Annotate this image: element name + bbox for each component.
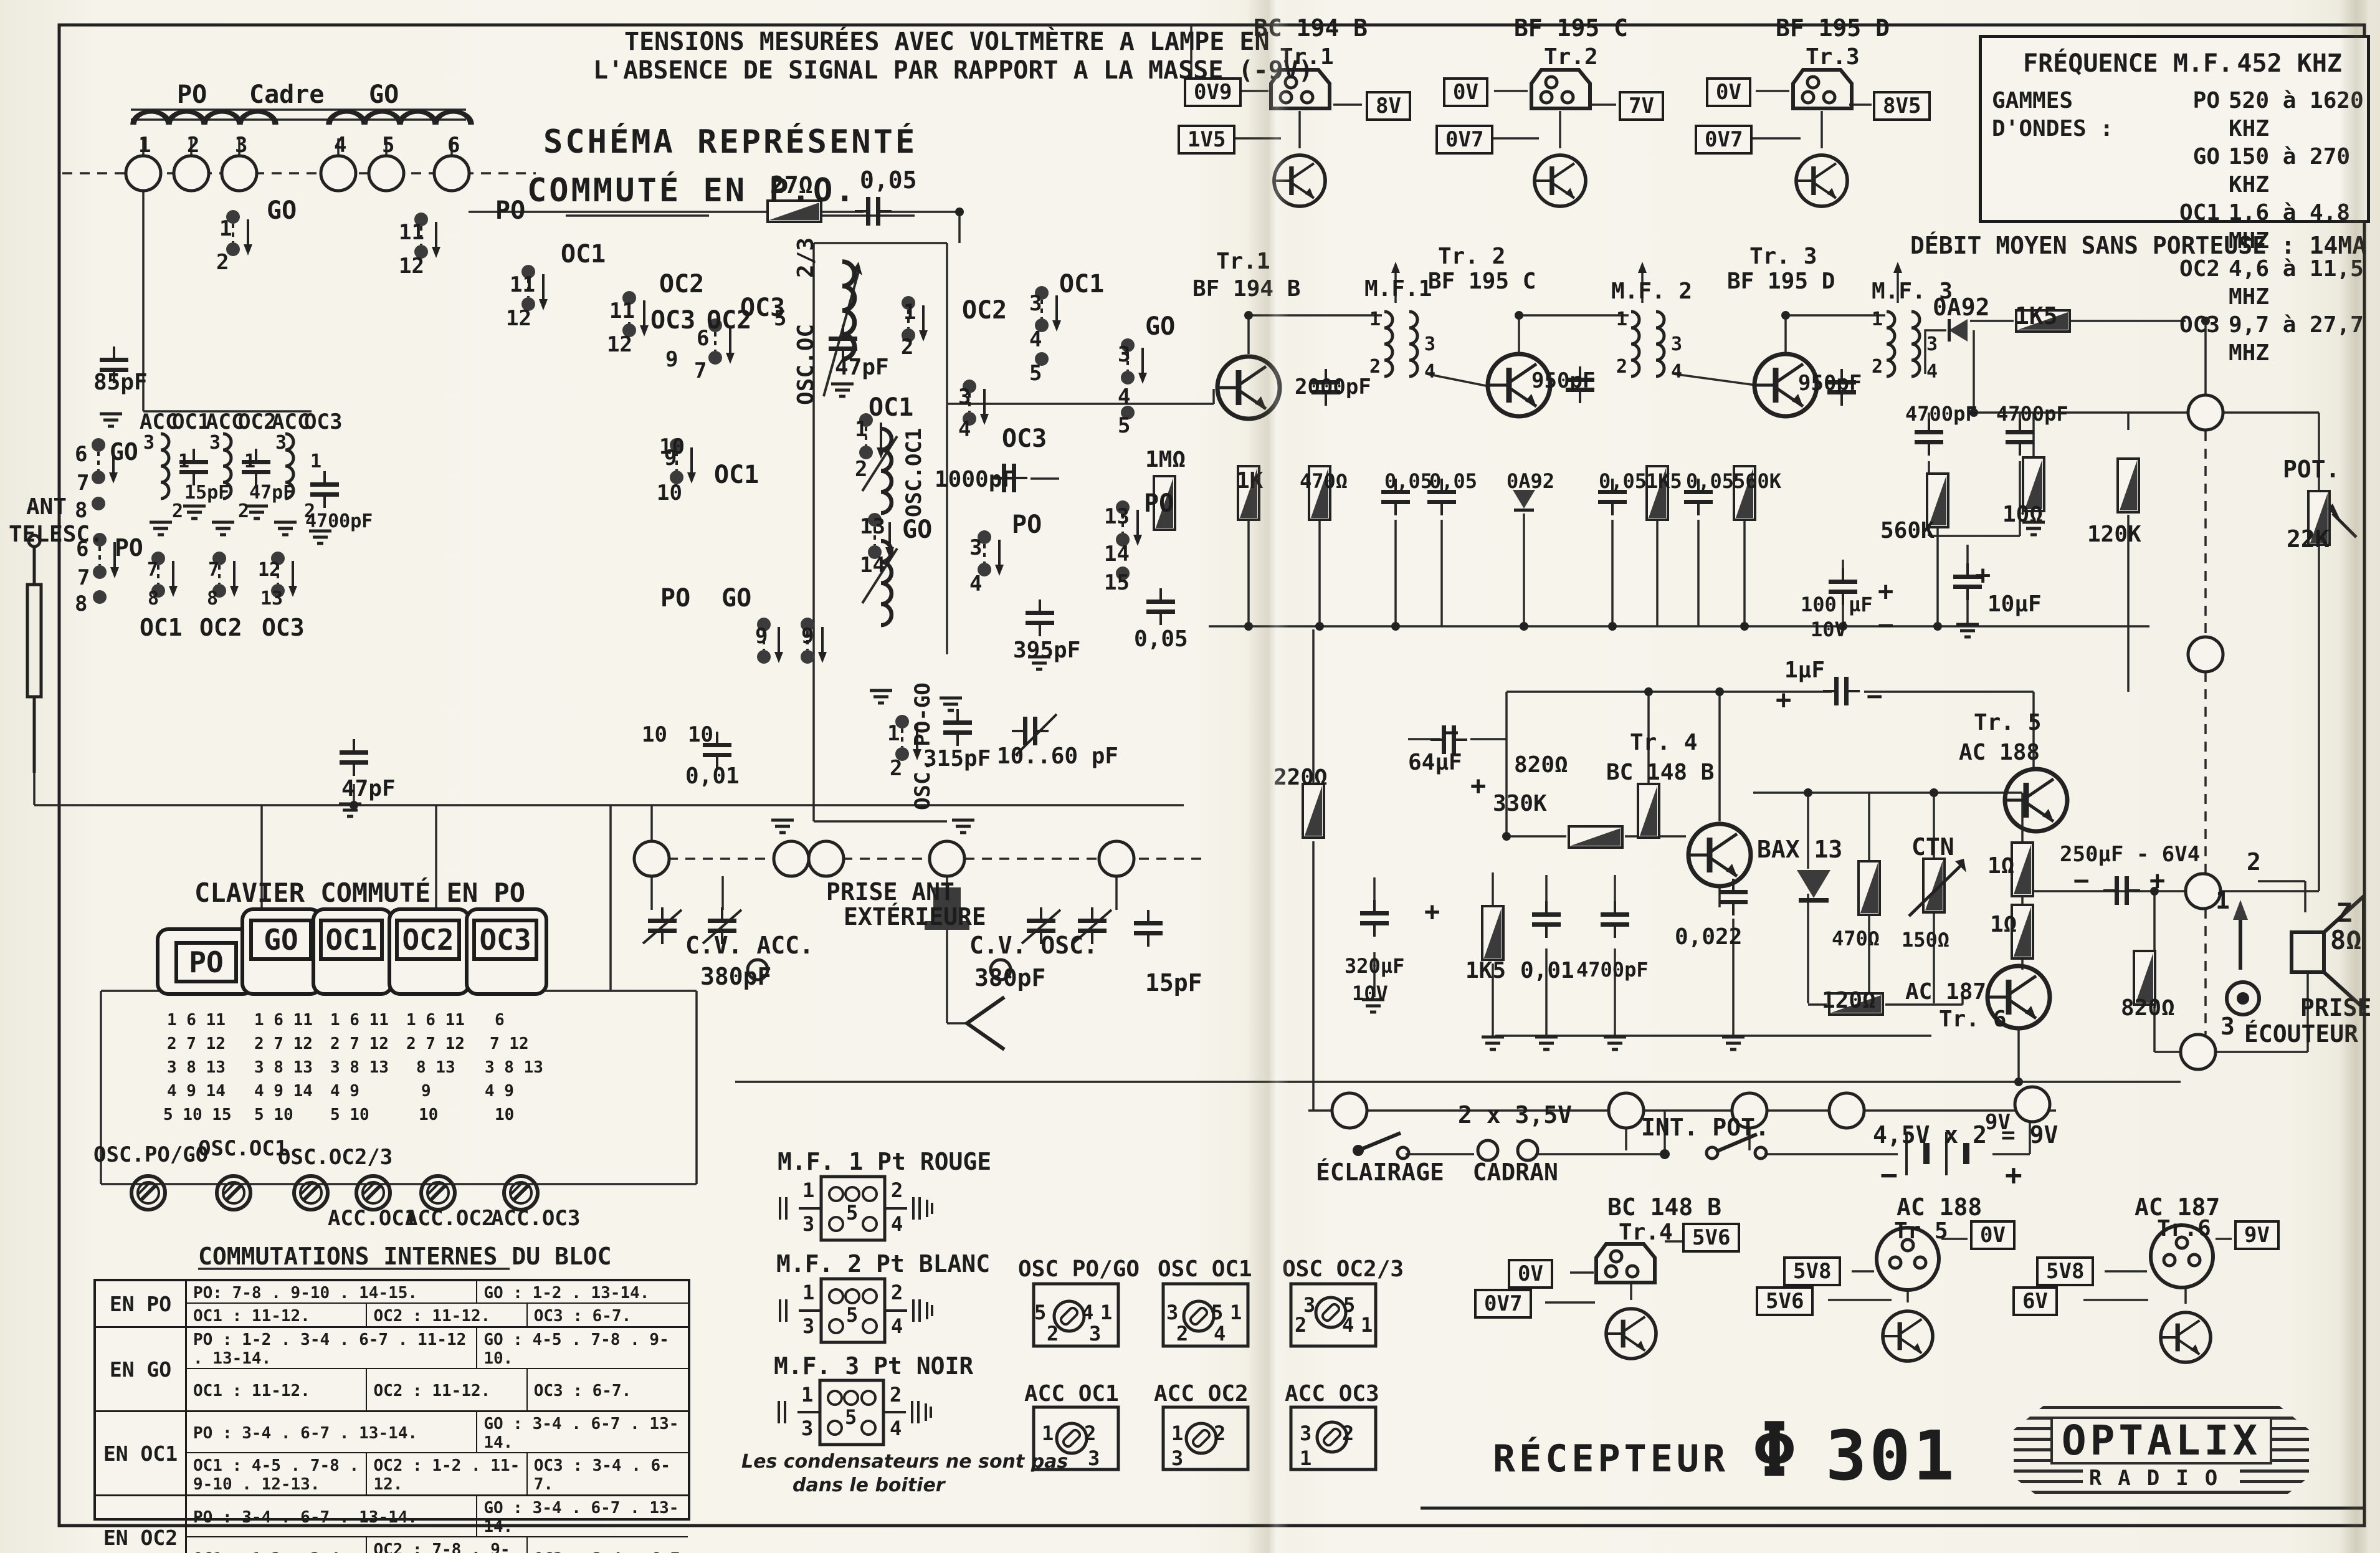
range-go: 150 à 270 KHZ	[2229, 143, 2372, 199]
schematic-label: 22K	[2287, 527, 2330, 551]
schematic-label: Z	[2336, 900, 2352, 926]
schematic-label: 3	[802, 1316, 814, 1336]
schematic-label: 10	[419, 1107, 438, 1123]
schematic-label: 15pF	[184, 484, 229, 502]
schematic-label: BF 195 C	[1514, 16, 1628, 40]
schematic-label: 1	[855, 419, 867, 440]
schematic-label: 12	[607, 334, 632, 355]
schematic-label: 2	[1342, 1423, 1354, 1443]
schematic-label: 14	[1104, 543, 1130, 565]
schematic-label: OC2	[707, 308, 751, 333]
schematic-label: 4700pF	[1576, 960, 1649, 980]
freq-mf-value: 452 KHZ	[2237, 49, 2342, 78]
schematic-label: 4700pF	[1905, 404, 1978, 424]
schematic-label: BC 148 B	[1606, 762, 1714, 784]
schematic-label: Tr. 4	[1630, 732, 1697, 754]
schematic-label: 380pF	[974, 966, 1045, 990]
schematic-label: 3	[1303, 1295, 1315, 1315]
schematic-label: 3 8 13	[167, 1059, 226, 1076]
schematic-label: C.V. OSC.	[969, 934, 1098, 957]
schematic-label: 3	[1300, 1423, 1311, 1443]
schematic-label: 1	[219, 218, 232, 239]
voltage-callout: 0V7	[1695, 125, 1753, 155]
key-oc2[interactable]: OC2	[395, 919, 461, 961]
schematic-label: Tr. 3	[1749, 246, 1817, 268]
schematic-label: GO	[369, 82, 399, 107]
schematic-label: −	[1878, 612, 1893, 638]
schematic-label: +	[1776, 687, 1791, 713]
schematic-label: −	[1880, 1160, 1898, 1189]
schematic-label: 1K	[1236, 470, 1263, 492]
schematic-label: 1	[1616, 310, 1627, 329]
schematic-label: 2	[890, 1385, 902, 1405]
schematic-label: BF 194 B	[1192, 278, 1300, 300]
schematic-label: 2 7 12	[254, 1036, 313, 1052]
schematic-label: EXTÉRIEURE	[844, 905, 986, 929]
schematic-label: 950pF	[1798, 373, 1862, 394]
schematic-label: 9	[421, 1083, 431, 1099]
voltage-callout: 5V6	[1682, 1223, 1740, 1253]
schematic-label: 1	[1171, 1423, 1183, 1443]
commut-table-title: COMMUTATIONS INTERNES DU BLOC	[198, 1243, 611, 1270]
schematic-label: OSC.OC	[795, 324, 817, 405]
mf2-title: M.F. 2 Pt BLANC	[776, 1250, 990, 1278]
schematic-label: 3	[2221, 1015, 2235, 1038]
schematic-label: 3	[209, 434, 221, 452]
schematic-label: OC1	[1059, 272, 1104, 297]
schematic-label: BF 195 D	[1776, 16, 1890, 40]
schematic-label: −	[2073, 867, 2089, 894]
schematic-label: 1	[2216, 889, 2230, 912]
schematic-label: 395pF	[1013, 639, 1080, 662]
schematic-label: Cadre	[249, 82, 324, 107]
schematic-label: 5	[1118, 415, 1130, 436]
schematic-label: OC2	[199, 616, 242, 639]
schematic-label: TELESC.	[9, 523, 103, 546]
schematic-label: 4	[1029, 329, 1042, 350]
schematic-label: 47pF	[249, 484, 294, 502]
schematic-label: BAX 13	[1757, 838, 1842, 861]
schematic-label: 12	[399, 256, 424, 277]
schematic-label: 0,022	[1675, 926, 1742, 949]
schematic-label: 1µF	[1784, 659, 1825, 682]
osc-pogo-title: OSC PO/GO	[1018, 1256, 1140, 1282]
schematic-label: M.F. 2	[1611, 280, 1692, 303]
freq-mf-label: FRÉQUENCE M.F.	[2023, 49, 2233, 78]
schematic-label: 120Ω	[1822, 990, 1876, 1012]
schematic-label: 10V	[1811, 619, 1847, 639]
schematic-label: 4	[1671, 363, 1682, 381]
schematic-label: 2/3	[795, 237, 817, 278]
schematic-label: 8 13	[416, 1059, 455, 1076]
schematic-label: 6	[76, 538, 88, 560]
schematic-label: 4	[334, 135, 346, 156]
schematic-label: 9	[665, 349, 678, 370]
key-oc1[interactable]: OC1	[319, 919, 384, 961]
schematic-label: 120K	[2087, 523, 2141, 546]
top-note-line1: TENSIONS MESURÉES AVEC VOLTMÈTRE A LAMPE…	[624, 27, 1270, 56]
schematic-label: ACC.OC1	[328, 1208, 417, 1229]
voltage-callout: 0V	[1970, 1220, 2016, 1250]
schematic-label: 0,05	[1429, 471, 1477, 491]
commutations-table: EN PO PO: 7-8 . 9-10 . 14-15.GO : 1-2 . …	[93, 1279, 690, 1521]
schematic-label: 11	[609, 300, 635, 322]
schematic-label: 5	[774, 308, 786, 329]
key-oc3[interactable]: OC3	[472, 919, 538, 961]
schematic-label: 2	[216, 252, 229, 273]
schematic-label: 4	[890, 1418, 902, 1438]
schematic-label: 0,01	[685, 765, 740, 788]
optalix-logo: OPTALIX RADIO	[2014, 1406, 2309, 1501]
schematic-label: 4	[969, 573, 982, 595]
schematic-label: Tr. 6	[1939, 1008, 2006, 1031]
schematic-label: 5	[1029, 363, 1042, 384]
schematic-label: Tr. 2	[1438, 246, 1505, 268]
schematic-label: 1	[1300, 1448, 1311, 1468]
schematic-label: −	[1443, 719, 1459, 745]
schematic-label: 1	[1230, 1302, 1242, 1322]
schematic-label: OC3	[650, 308, 695, 333]
schematic-label: 10Ω	[2002, 504, 2043, 526]
schematic-label: 3	[958, 386, 971, 408]
acc-oc3-title: ACC OC3	[1285, 1381, 1379, 1407]
schematic-label: 5	[1343, 1295, 1355, 1315]
mf3-title: M.F. 3 Pt NOIR	[774, 1352, 973, 1380]
schematic-label: 3	[801, 1418, 813, 1438]
schematic-label: 4	[1342, 1315, 1354, 1335]
schematic-label: 1	[887, 723, 900, 744]
schematic-label: 4 9 14	[167, 1083, 226, 1099]
schematic-label: 3	[1424, 335, 1435, 354]
schematic-label: 4	[1118, 386, 1130, 408]
schematic-label: 1 6 11	[167, 1012, 226, 1028]
schematic-label: PO	[660, 586, 690, 611]
schematic-label: 4	[958, 419, 971, 440]
schematic-label: 2	[172, 502, 183, 521]
schematic-label: Tr. 5	[1974, 712, 2041, 734]
schema-title-line2: COMMUTÉ EN P.O.	[527, 172, 857, 209]
schematic-label: 1	[801, 1385, 813, 1405]
schematic-label: −	[1867, 683, 1882, 709]
schematic-label: PO	[495, 198, 525, 223]
key-po[interactable]: PO	[174, 941, 238, 983]
table-row: EN PO PO: 7-8 . 9-10 . 14-15.GO : 1-2 . …	[96, 1281, 688, 1328]
schematic-label: 2	[1214, 1423, 1226, 1443]
schematic-label: 4 9	[330, 1083, 359, 1099]
schematic-label: 3	[802, 1214, 814, 1234]
schematic-label: 3 8 13	[330, 1059, 389, 1076]
schematic-label: 470Ω	[1300, 471, 1348, 491]
schematic-label: PRISE	[2300, 996, 2371, 1020]
schematic-label: 7	[694, 360, 707, 381]
schematic-label: 250µF - 6V4	[2060, 844, 2200, 865]
schematic-label: 1	[178, 452, 189, 471]
voltage-callout: 0V	[1443, 77, 1488, 107]
schematic-label: OC1	[561, 242, 606, 267]
schematic-label: 2	[855, 459, 867, 480]
band-oc2: OC2	[2179, 255, 2229, 311]
schematic-label: 100 µF	[1801, 595, 1873, 614]
table-row: EN GO PO : 1-2 . 3-4 . 6-7 . 11-12 . 13-…	[96, 1328, 688, 1412]
schematic-page: POCadreGO123456GO12PO1112OC11112OC21112O…	[0, 0, 2380, 1553]
schematic-label: POT.	[2283, 457, 2340, 481]
schematic-label: 1	[244, 452, 255, 471]
schematic-label: 2	[238, 502, 249, 521]
schematic-label: 15pF	[1145, 971, 1202, 995]
schematic-label: 4700pF	[1996, 404, 2068, 424]
schematic-label: 8	[75, 500, 87, 521]
schematic-label: 560K	[1880, 520, 1935, 542]
schematic-label: 5 10	[330, 1107, 369, 1123]
schematic-label: 2	[901, 337, 913, 358]
schematic-label: 2	[1047, 1324, 1059, 1344]
schematic-label: 7	[77, 472, 89, 494]
schematic-label: OC3	[304, 411, 342, 432]
debit-note: DÉBIT MOYEN SANS PORTEUSE : 14MA	[1910, 232, 2366, 259]
top-note-line2: L'ABSENCE DE SIGNAL PAR RAPPORT A LA MAS…	[593, 56, 1313, 85]
schematic-label: 11	[399, 222, 424, 243]
schematic-label: 560K	[1733, 471, 1781, 491]
schematic-label: 5	[846, 1305, 858, 1325]
schematic-label: Tr.6	[2157, 1218, 2211, 1240]
schematic-label: OC2	[238, 411, 276, 432]
schematic-label: 10	[657, 482, 682, 504]
schematic-label: 1	[138, 135, 151, 156]
schematic-label: 7	[147, 561, 158, 580]
schematic-label: 2 7 12	[330, 1036, 389, 1052]
schematic-label: 2	[1369, 358, 1381, 376]
schematic-label: ACC.OC3	[491, 1208, 580, 1229]
schematic-label: 2	[187, 135, 199, 156]
voltage-callout: 0V7	[1435, 125, 1493, 155]
schematic-label: 0,01	[1520, 960, 1574, 982]
schematic-label: 2	[2247, 850, 2261, 874]
schematic-label: 380pF	[700, 965, 771, 988]
schematic-label: 220Ω	[1273, 767, 1328, 789]
schematic-label: 3	[969, 537, 982, 558]
schematic-label: 9V	[1985, 1112, 2011, 1133]
schematic-label: 4	[891, 1316, 903, 1336]
schematic-label: 2	[1295, 1315, 1307, 1335]
schematic-label: 9	[801, 626, 814, 647]
schematic-label: +	[1975, 562, 1991, 588]
brand-name: OPTALIX	[2050, 1417, 2272, 1465]
schematic-label: 8Ω	[2330, 927, 2362, 953]
schematic-label: 15	[1104, 572, 1130, 593]
frequency-table: FRÉQUENCE M.F.452 KHZ GAMMES D'ONDES :PO…	[1979, 35, 2370, 223]
schematic-label: +	[1878, 578, 1893, 604]
voltage-callout: 0V	[1706, 77, 1751, 107]
schematic-label: 47pF	[835, 356, 889, 379]
schematic-label: 10	[495, 1107, 514, 1123]
schematic-label: ÉCOUTEUR	[2244, 1022, 2358, 1046]
schematic-label: OSC.PO/GO	[93, 1144, 208, 1165]
schematic-label: 1	[903, 302, 916, 323]
schematic-label: ANT	[26, 496, 67, 518]
schematic-label: +	[1470, 773, 1486, 799]
schematic-label: 9	[755, 626, 768, 647]
schematic-label: 5	[1211, 1302, 1223, 1322]
schematic-label: 10..60 pF	[997, 745, 1118, 768]
schematic-label: 5	[382, 135, 394, 156]
range-po: 520 à 1620 KHZ	[2229, 87, 2372, 143]
osc-oc23-title: OSC OC2/3	[1282, 1256, 1404, 1282]
schematic-label: 470Ω	[1832, 929, 1880, 949]
schematic-label: 0,05	[860, 168, 917, 192]
schematic-label: 47pF	[341, 778, 396, 800]
schematic-label: +	[1424, 899, 1440, 925]
schematic-label: 64µF	[1408, 752, 1462, 774]
voltage-callout: 5V6	[1756, 1286, 1814, 1316]
schematic-label: GO	[1145, 314, 1175, 339]
schematic-label: OSC.OC1	[198, 1138, 287, 1159]
schematic-label: 7	[77, 567, 90, 588]
schematic-label: 2	[1176, 1324, 1188, 1344]
schematic-label: 4	[1424, 363, 1435, 381]
schematic-label: 4 9	[485, 1083, 514, 1099]
acc-oc1-title: ACC OC1	[1024, 1381, 1119, 1407]
schematic-label: 1	[1100, 1302, 1112, 1322]
receiver-label: RÉCEPTEUR	[1493, 1437, 1729, 1481]
mf-note-line2: dans le boitier	[793, 1474, 945, 1496]
schematic-label: 6	[75, 444, 87, 465]
schematic-label: 13	[260, 590, 283, 608]
schematic-label: BF 195 D	[1727, 270, 1835, 293]
schematic-label: INT. POT.	[1641, 1116, 1769, 1139]
clavier-title: CLAVIER COMMUTÉ EN PO	[194, 877, 525, 908]
schematic-label: 950pF	[1531, 370, 1595, 391]
schematic-label: OC1	[140, 616, 183, 639]
schematic-label: 0,05	[1599, 471, 1647, 491]
schematic-label: 4	[891, 1214, 903, 1234]
schematic-label: 1Ω	[1987, 855, 2014, 877]
schematic-label: M.F.1	[1364, 278, 1432, 300]
band-po: PO	[2179, 87, 2229, 143]
schematic-label: AC 188	[1959, 742, 2040, 764]
voltage-callout: 0V7	[1474, 1289, 1532, 1319]
key-go[interactable]: GO	[249, 919, 313, 961]
schematic-label: 3	[143, 434, 155, 452]
schematic-label: OSC.OC2/3	[278, 1147, 393, 1168]
voltage-callout: 8V5	[1873, 91, 1931, 121]
schematic-label: GO	[721, 586, 751, 611]
schematic-label: 820Ω	[1514, 754, 1568, 777]
voltage-callout: 6V	[2012, 1286, 2058, 1316]
schematic-label: 10µF	[1987, 593, 2042, 616]
mf-note-line1: Les condensateurs ne sont pas	[741, 1451, 1068, 1473]
schematic-label: Tr.1	[1216, 251, 1270, 273]
schematic-label: 8	[75, 593, 87, 614]
schematic-label: Tr.3	[1806, 46, 1860, 69]
schematic-label: 1 6 11	[406, 1012, 465, 1028]
schematic-label: 10V	[1352, 983, 1388, 1003]
schematic-label: 3	[1118, 344, 1130, 365]
schematic-label: AC 188	[1897, 1195, 1982, 1219]
schematic-label: 2	[1616, 358, 1627, 376]
schematic-label: 12	[258, 561, 280, 580]
schematic-label: OC1	[172, 411, 210, 432]
schematic-label: +	[2149, 867, 2165, 894]
schematic-label: 1	[1369, 310, 1381, 329]
schematic-label: GO	[902, 517, 932, 542]
schematic-label: 2	[891, 1180, 903, 1200]
acc-oc2-title: ACC OC2	[1154, 1381, 1249, 1407]
schematic-label: 1 6 11	[330, 1012, 389, 1028]
schematic-label: PO	[1012, 512, 1042, 537]
voltage-callout: 8V	[1366, 91, 1411, 121]
schematic-label: OC3	[262, 616, 305, 639]
schematic-label: BC 148 B	[1607, 1195, 1721, 1219]
table-row: EN OC1 PO : 3-4 . 6-7 . 13-14.GO : 3-4 .…	[96, 1412, 688, 1496]
schematic-label: Tr.4	[1619, 1221, 1673, 1244]
schematic-label: 2	[1872, 358, 1883, 376]
schematic-label: 0,05	[1134, 628, 1188, 651]
schematic-label: 8	[148, 590, 159, 608]
schematic-label: GO	[267, 198, 297, 223]
schematic-label: 1	[1872, 310, 1883, 329]
band-go: GO	[2179, 143, 2229, 199]
voltage-callout: 1V5	[1178, 125, 1235, 155]
schematic-label: 1K5	[1465, 960, 1506, 982]
schematic-label: 2 x 3,5V	[1458, 1103, 1572, 1127]
schematic-label: 6	[495, 1012, 505, 1028]
schematic-label: 4,5V x 2 = 9V	[1873, 1123, 2058, 1147]
schematic-label: 7 12	[490, 1036, 529, 1052]
schematic-label: 1	[802, 1283, 814, 1302]
schematic-label: ÉCLAIRAGE CADRAN	[1316, 1160, 1558, 1184]
schematic-label: GO	[110, 440, 138, 464]
schematic-label: 3	[1671, 335, 1682, 354]
schematic-label: 8	[207, 590, 218, 608]
schematic-label: 85pF	[93, 371, 148, 394]
voltage-callout: 5V8	[1783, 1256, 1841, 1286]
schematic-label: 4	[1082, 1302, 1093, 1322]
schematic-label: C.V. ACC.	[685, 934, 814, 957]
schematic-label: CTN	[1911, 835, 1954, 859]
schematic-label: 3 8 13	[485, 1059, 543, 1076]
schematic-label: 1K5	[1646, 471, 1682, 491]
schematic-label: OC1	[714, 462, 759, 487]
schematic-label: 1MΩ	[1145, 449, 1186, 471]
mf1-title: M.F. 1 Pt ROUGE	[778, 1148, 991, 1175]
schematic-label: Tr.2	[1544, 46, 1598, 69]
voltage-callout: 9V	[2234, 1220, 2280, 1250]
schematic-label: 820Ω	[2121, 997, 2175, 1020]
schematic-label: 3	[1171, 1448, 1183, 1468]
schematic-label: AC 187	[1905, 981, 1986, 1003]
band-oc3: OC3	[2179, 311, 2229, 367]
schematic-label: 3	[235, 135, 247, 156]
schematic-label: 5 10	[254, 1107, 293, 1123]
schematic-label: OC2	[659, 272, 704, 297]
schematic-label: OC3	[1002, 426, 1047, 451]
schematic-label: 1	[802, 1180, 814, 1200]
schematic-label: PO	[115, 536, 143, 560]
schematic-label: OC1	[869, 395, 913, 420]
schematic-label: 2 7 12	[406, 1036, 465, 1052]
range-oc3: 9,7 à 27,7 MHZ	[2229, 311, 2372, 367]
schematic-label: 3	[1088, 1448, 1100, 1468]
schematic-label: 7	[208, 561, 219, 580]
schematic-label: +	[2005, 1160, 2022, 1189]
schematic-label: 2	[891, 1283, 903, 1302]
schematic-label: 11	[510, 274, 535, 295]
schematic-label: 14	[860, 555, 885, 576]
schematic-label: 3	[275, 434, 287, 452]
schematic-label: 330K	[1493, 793, 1547, 815]
brand-sub: RADIO	[2083, 1467, 2240, 1490]
schematic-label: 320µF	[1345, 956, 1404, 976]
